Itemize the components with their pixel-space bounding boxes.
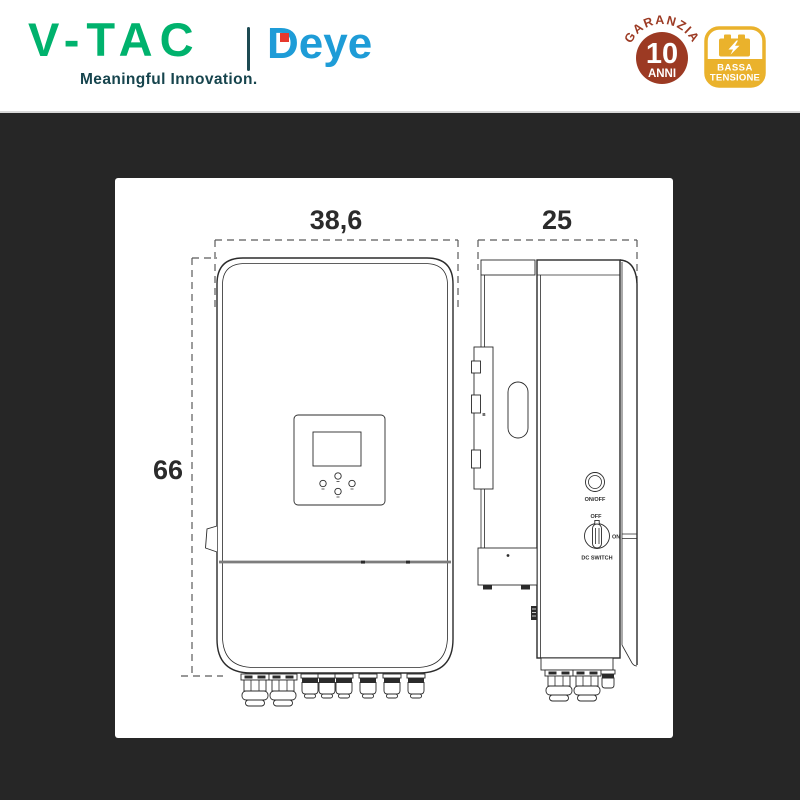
dc-connector	[359, 674, 377, 698]
header: V-TAC Meaningful Innovation. Deye GARANZ…	[0, 0, 800, 113]
deye-red-dot-icon	[280, 33, 289, 42]
dc-switch-off-label: OFF	[591, 514, 603, 520]
main-area: 38,6 25 66	[0, 113, 800, 800]
warranty-years: 10	[646, 38, 678, 70]
logo-separator	[247, 27, 250, 71]
warranty-unit: ANNI	[648, 68, 676, 80]
front-bottom-connectors	[241, 674, 425, 706]
cable-gland	[269, 674, 297, 706]
dimension-card: 38,6 25 66	[115, 178, 673, 738]
dc-connector	[335, 674, 353, 698]
cable-gland	[241, 674, 269, 706]
side-bottom-connectors	[541, 658, 615, 701]
handle-slot	[508, 382, 528, 438]
side-view: B O	[472, 260, 638, 701]
inverter-side-body	[537, 260, 620, 658]
vtac-logo: V-TAC	[28, 16, 201, 63]
small-label	[531, 606, 537, 620]
dimension-diagram: 38,6 25 66	[115, 178, 673, 738]
warranty-badge: GARANZIA 10 ANNI	[622, 6, 702, 106]
cable-gland	[545, 670, 573, 701]
power-button-label: ON/OFF	[585, 497, 606, 503]
width-dimension-label: 38,6	[310, 205, 363, 235]
side-latch	[206, 526, 218, 552]
power-button: ON/OFF	[585, 473, 606, 504]
dc-connector	[383, 674, 401, 698]
front-view	[206, 258, 454, 706]
deye-logo: Deye	[267, 22, 372, 66]
junction-box	[478, 548, 537, 590]
vtac-tagline: Meaningful Innovation.	[80, 71, 258, 89]
mounting-bracket: B	[472, 347, 494, 489]
cable-gland	[573, 670, 601, 701]
dc-connector	[301, 674, 319, 698]
dc-switch-name-label: DC SWITCH	[581, 556, 612, 562]
display-panel	[294, 415, 385, 505]
dc-switch-on-label: ON	[612, 535, 620, 541]
lcd-screen	[313, 432, 361, 466]
low-voltage-badge: BASSA TENSIONE	[704, 26, 766, 88]
side-front-panel	[620, 260, 637, 666]
low-voltage-line2: TENSIONE	[710, 73, 760, 84]
height-dimension-label: 66	[153, 455, 183, 485]
rear-top-strip	[481, 260, 535, 275]
depth-dimension-label: 25	[542, 205, 572, 235]
dc-connector	[407, 674, 425, 698]
dc-connector	[601, 670, 615, 688]
dc-connector	[318, 674, 336, 698]
